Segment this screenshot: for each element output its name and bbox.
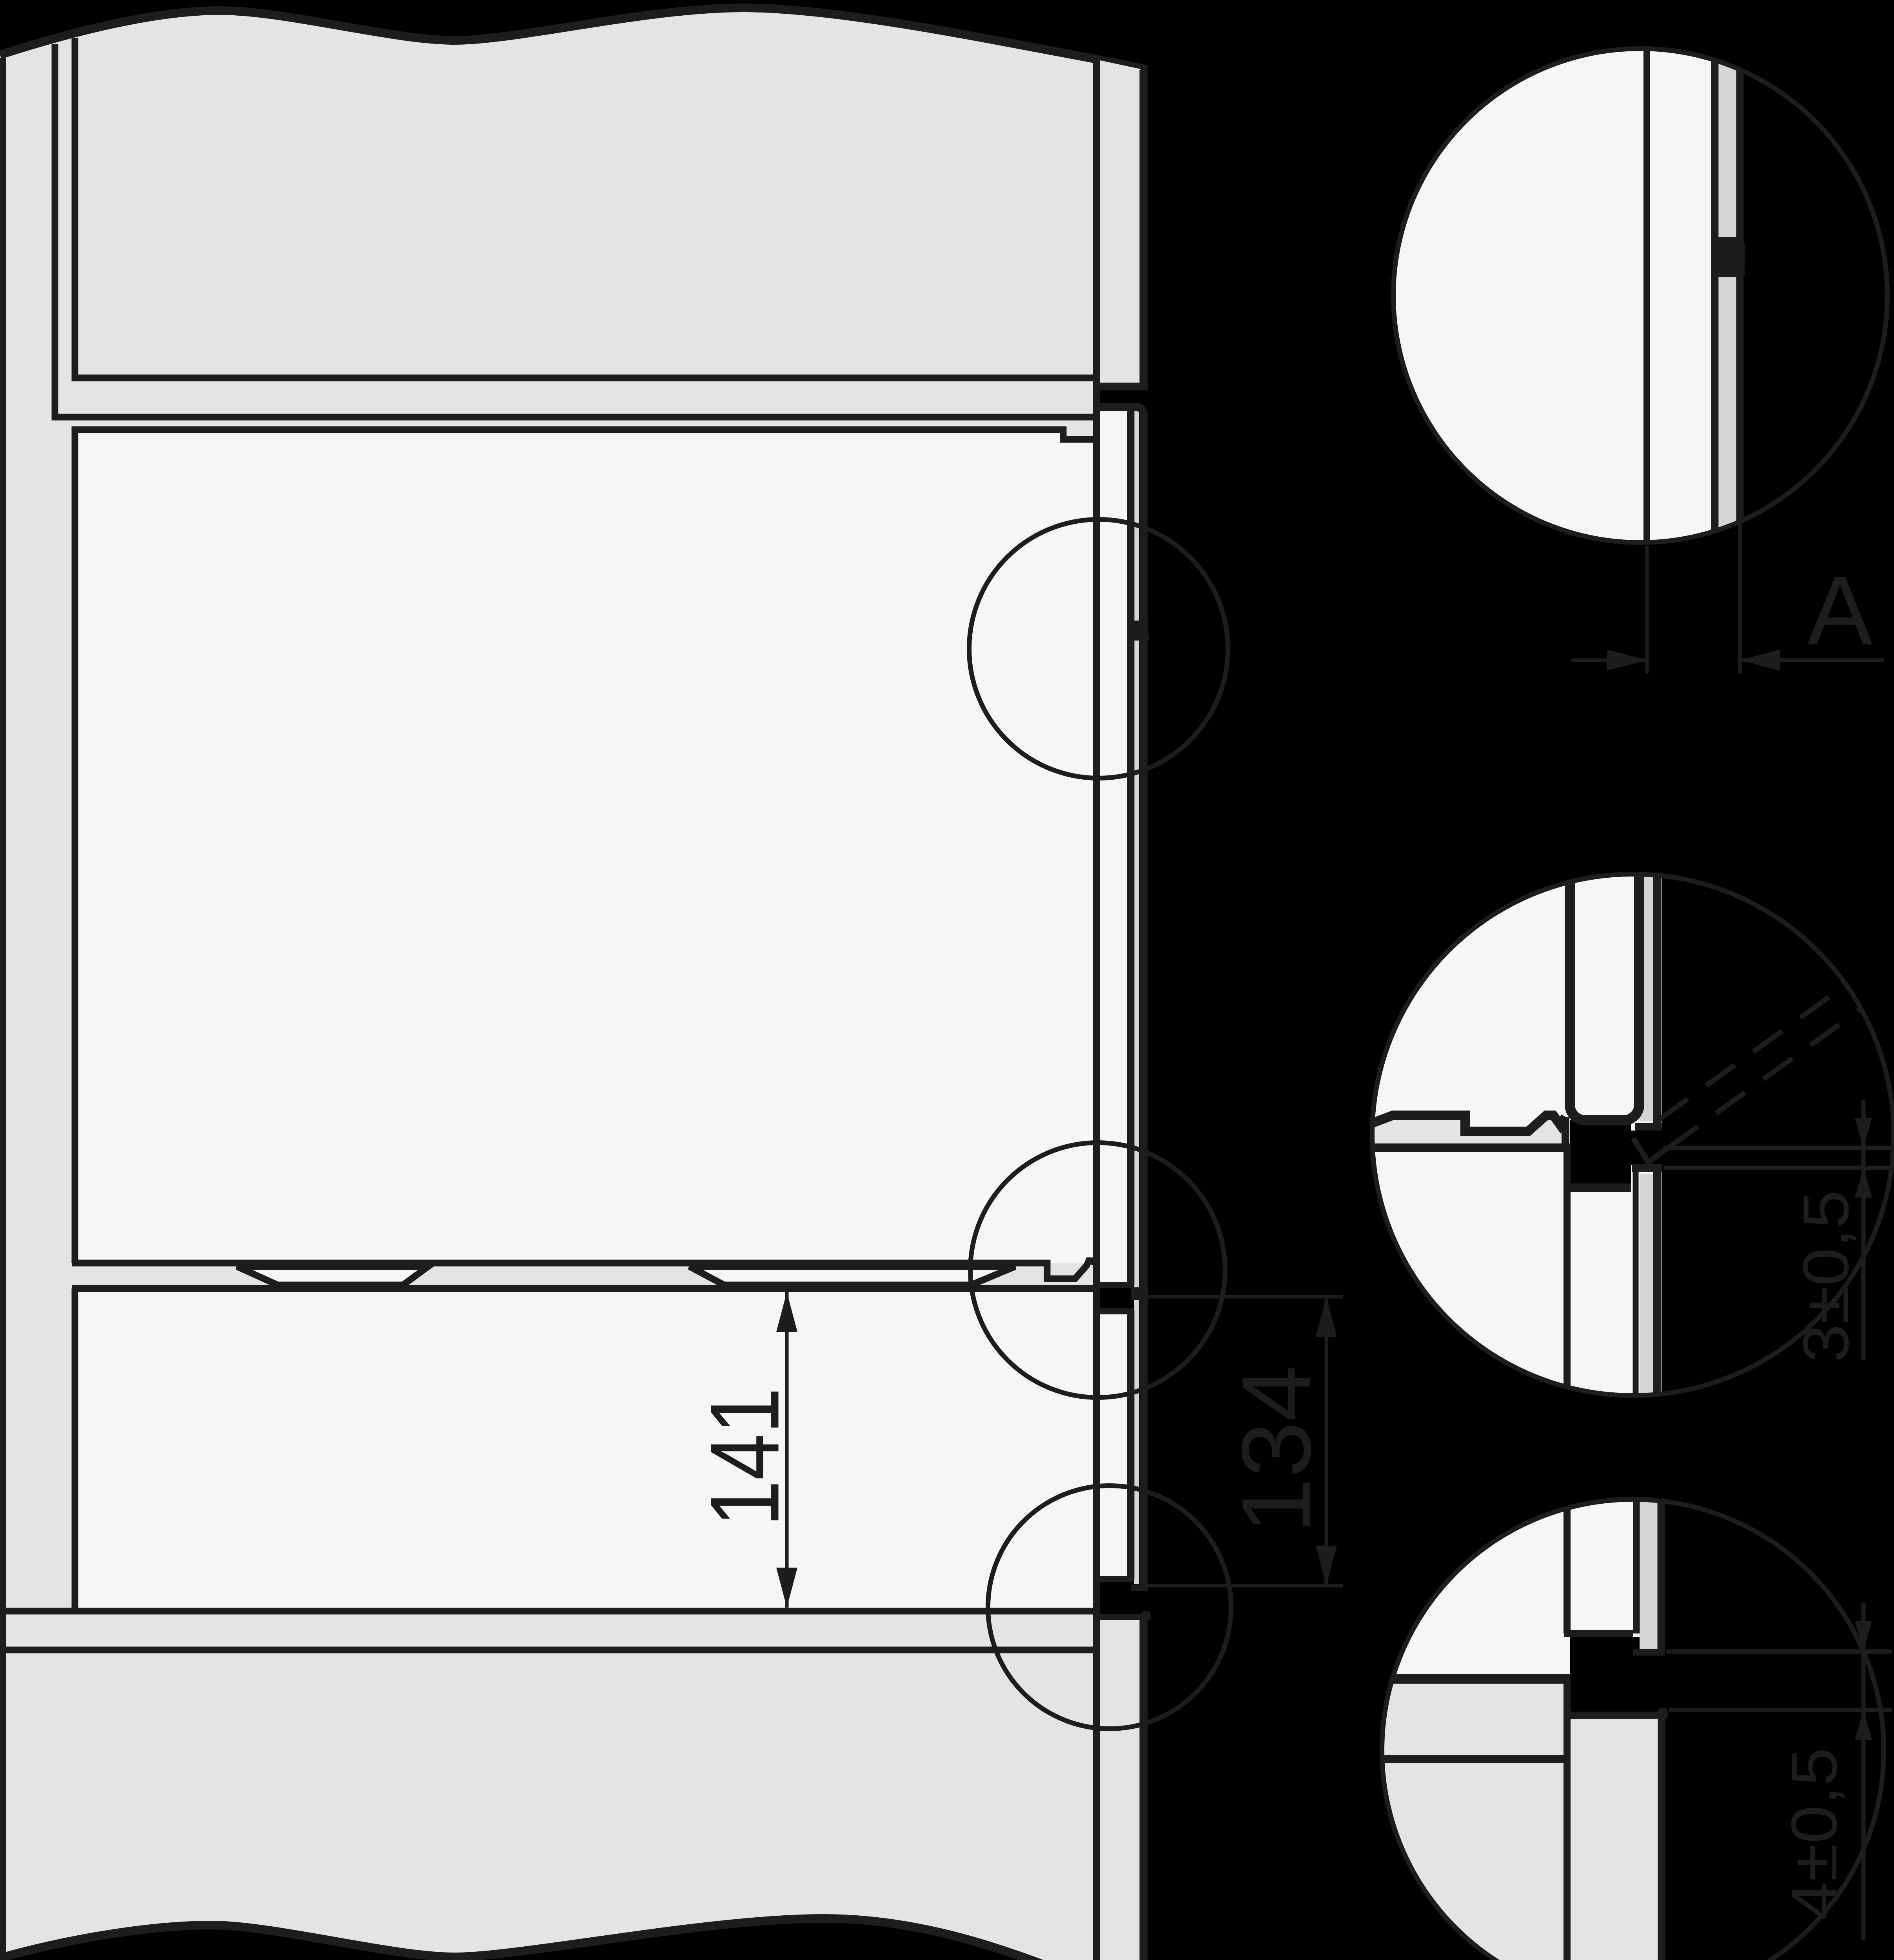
svg-text:141: 141 (690, 1388, 799, 1527)
svg-text:4±0,5: 4±0,5 (1778, 1748, 1850, 1920)
svg-text:A: A (1807, 556, 1873, 665)
svg-text:3±0,5: 3±0,5 (1790, 1190, 1862, 1363)
svg-text:134: 134 (1222, 1365, 1331, 1534)
